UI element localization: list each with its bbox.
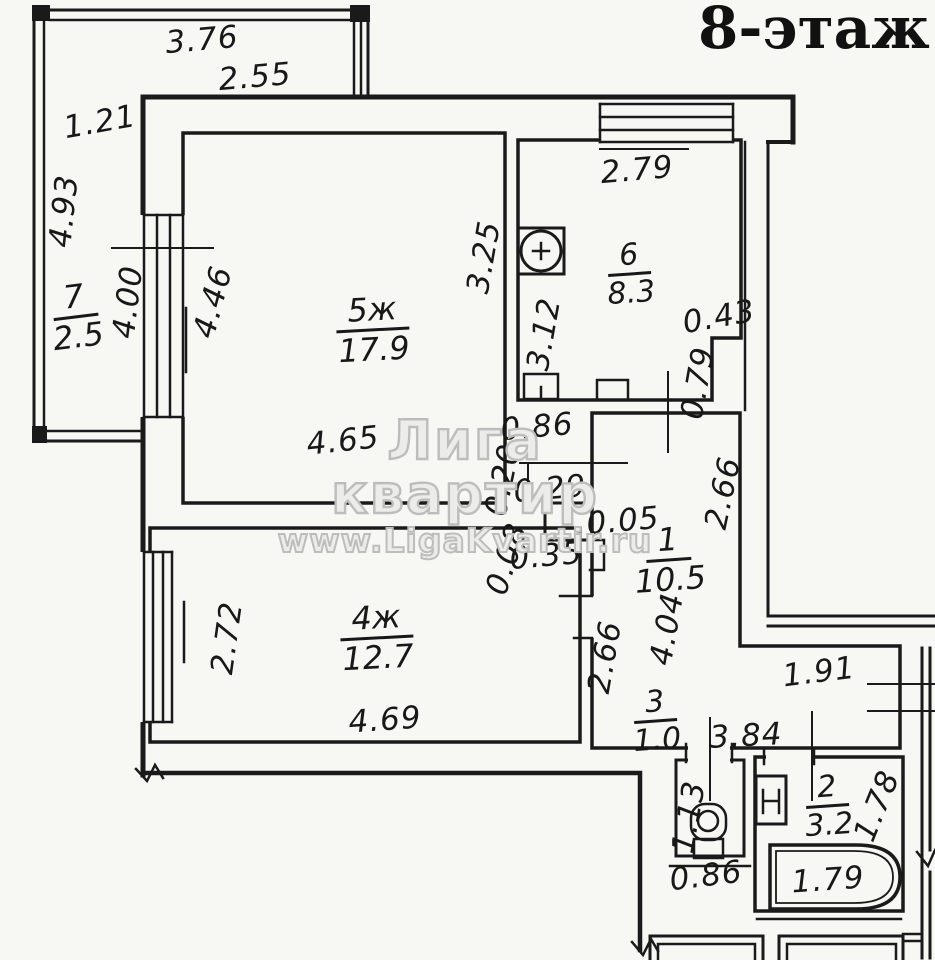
dim-balcony-width-top: 3.76 [164,19,240,61]
room-label-1: 1 10.5 [631,521,707,599]
room-number: 2 [804,770,849,808]
dim-kitchen-notch-width: 0.43 [680,293,758,341]
dim-hall-lower-height: 4.04 [643,590,691,668]
room-area: 1.0 [632,720,682,757]
room-label-4: 4ж 12.7 [339,600,416,677]
room-area: 3.2 [804,805,854,842]
room-number: 6 [606,238,651,276]
dim-room4-width: 4.69 [347,699,422,740]
room-area: 12.7 [341,637,414,676]
dim-balcony-width-inner: 2.55 [217,56,293,98]
dim-hall-upper-height: 2.66 [698,454,748,533]
room-number: 7 [50,278,99,321]
dim-kitchen-depth: 3.12 [520,295,568,373]
dim-jog-f: 0.35 [508,535,584,577]
floor-label: 8-этаж [698,0,930,62]
dim-bath-depth: 1.78 [847,765,908,846]
room-label-6: 6 8.3 [604,238,656,310]
dim-jog-c: 0.29 [512,468,588,510]
room-label-7: 7 2.5 [46,278,105,357]
dim-kitchen-width: 2.79 [599,149,675,191]
room-label-3: 3 1.0 [630,685,682,757]
room-area: 10.5 [634,559,708,599]
room-label-2: 2 3.2 [802,770,854,842]
room-area: 8.3 [606,273,656,310]
room-number: 3 [632,685,677,723]
room-number: 1 [644,522,691,563]
labels-layer: 3.76 2.55 1.21 4.93 4.00 4.46 3.25 4.65 … [0,0,935,960]
dim-corridor-span: 3.84 [709,716,784,756]
room-area: 2.5 [51,315,106,357]
page-title: 8-этажК [698,0,935,62]
dim-room5-window-wall: 4.46 [186,262,240,342]
dim-room5-width: 4.65 [305,419,381,462]
dim-wc-width: 0.86 [668,854,745,899]
dim-balcony-wall: 4.00 [106,264,151,341]
dim-balcony-left-width: 1.21 [61,98,139,146]
room-area: 17.9 [337,329,410,368]
dim-room4-door-wall: 2.66 [581,618,629,696]
dim-kitchen-notch-height: 0.79 [674,344,722,422]
dim-balcony-left-height: 4.93 [42,173,85,249]
floor-plan: 3.76 2.55 1.21 4.93 4.00 4.46 3.25 4.65 … [0,0,935,960]
room-number: 4ж [339,600,414,641]
dim-wc-depth: 1.13 [665,778,713,856]
dim-room4-window-wall: 2.72 [204,599,250,676]
dim-vestibule-width: 1.91 [781,650,858,695]
room-number: 5ж [335,292,410,333]
room-label-5: 5ж 17.9 [335,292,412,369]
dim-room5-depth: 3.25 [460,218,508,296]
dim-jog-a: 0.86 [499,406,575,448]
dim-bathtub-length: 1.79 [790,859,865,900]
